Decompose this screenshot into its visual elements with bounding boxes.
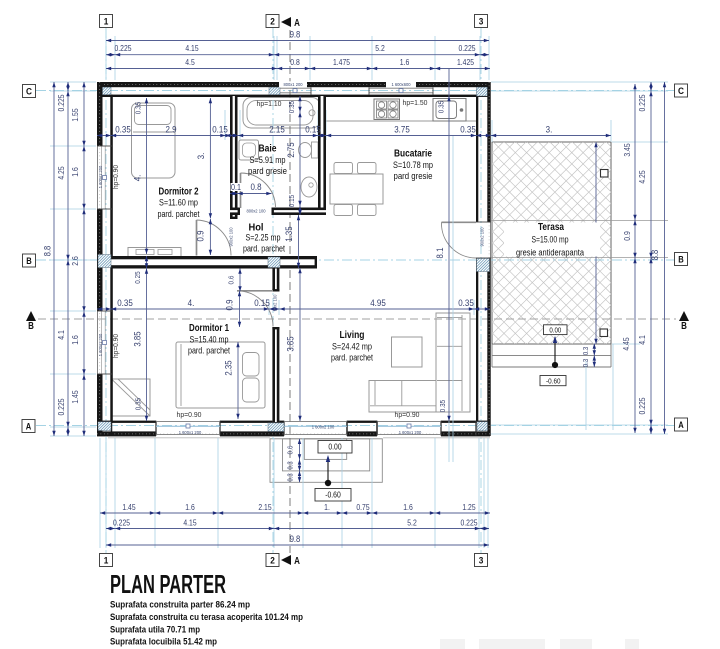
svg-text:Bucatarie: Bucatarie xyxy=(394,149,432,160)
svg-text:3.: 3. xyxy=(546,124,553,135)
svg-text:1.25: 1.25 xyxy=(462,503,476,512)
svg-text:3.85: 3.85 xyxy=(286,336,296,351)
svg-text:C: C xyxy=(26,87,32,98)
svg-text:Suprafata construita parter 86: Suprafata construita parter 86.24 mp xyxy=(110,600,250,611)
svg-text:0.6: 0.6 xyxy=(227,276,236,285)
svg-text:0.3: 0.3 xyxy=(288,461,295,469)
svg-text:3.45: 3.45 xyxy=(623,143,632,157)
svg-text:4.25: 4.25 xyxy=(638,170,647,184)
svg-text:pard. parchet: pard. parchet xyxy=(331,353,373,364)
svg-text:0.8: 0.8 xyxy=(290,58,300,67)
svg-text:900x2 100: 900x2 100 xyxy=(229,227,235,246)
svg-text:S=15.00 mp: S=15.00 mp xyxy=(532,235,569,245)
svg-text:hp=0.90: hp=0.90 xyxy=(177,410,202,419)
svg-text:1.6: 1.6 xyxy=(71,167,80,177)
svg-text:Suprafata utila 70.71 mp: Suprafata utila 70.71 mp xyxy=(110,625,200,636)
svg-text:0.225: 0.225 xyxy=(113,519,130,528)
svg-text:1: 1 xyxy=(104,17,109,28)
svg-text:0.225: 0.225 xyxy=(461,519,478,528)
svg-text:1.425: 1.425 xyxy=(457,58,474,67)
svg-text:3: 3 xyxy=(479,556,484,567)
svg-text:S=2.25 mp: S=2.25 mp xyxy=(246,232,281,243)
svg-text:0.3: 0.3 xyxy=(583,359,590,367)
svg-text:3.85: 3.85 xyxy=(133,331,143,346)
svg-text:1.6: 1.6 xyxy=(185,503,195,512)
svg-text:1.35: 1.35 xyxy=(284,226,294,241)
svg-text:pard. parchet: pard. parchet xyxy=(243,243,285,254)
svg-text:1 600x600: 1 600x600 xyxy=(391,82,410,88)
svg-text:3.75: 3.75 xyxy=(394,124,410,135)
svg-text:0.15: 0.15 xyxy=(305,124,321,135)
svg-text:gresie antiderapanta: gresie antiderapanta xyxy=(516,248,584,258)
svg-text:2.75: 2.75 xyxy=(286,142,296,157)
svg-text:0.225: 0.225 xyxy=(459,44,476,53)
svg-text:0.15: 0.15 xyxy=(287,195,296,207)
svg-text:0.25: 0.25 xyxy=(133,271,142,283)
svg-text:0.35: 0.35 xyxy=(287,101,296,113)
svg-text:90x2 100: 90x2 100 xyxy=(273,294,279,311)
svg-text:0.225: 0.225 xyxy=(57,94,66,111)
svg-text:0.225: 0.225 xyxy=(638,397,647,414)
svg-text:2.6: 2.6 xyxy=(71,256,80,266)
svg-text:0.9: 0.9 xyxy=(196,231,206,242)
svg-text:2.35: 2.35 xyxy=(224,360,234,375)
svg-text:9.8: 9.8 xyxy=(290,534,301,544)
svg-text:0.1: 0.1 xyxy=(231,182,241,192)
svg-text:4.1: 4.1 xyxy=(57,330,66,340)
svg-text:8.8: 8.8 xyxy=(650,250,660,260)
svg-text:Living: Living xyxy=(340,330,365,341)
svg-text:1.6: 1.6 xyxy=(400,58,410,67)
svg-text:S=24.42 mp: S=24.42 mp xyxy=(332,341,372,352)
svg-text:1 600x1 200: 1 600x1 200 xyxy=(98,165,104,188)
svg-text:0.225: 0.225 xyxy=(115,44,132,53)
svg-text:A: A xyxy=(294,18,300,29)
svg-text:hp=0.90: hp=0.90 xyxy=(113,165,120,189)
svg-text:0.35: 0.35 xyxy=(134,398,143,410)
svg-text:-0.60: -0.60 xyxy=(546,377,561,386)
svg-text:2.15: 2.15 xyxy=(269,124,285,135)
svg-text:0.15: 0.15 xyxy=(212,124,228,135)
svg-text:4.1: 4.1 xyxy=(638,335,647,345)
svg-text:0.9: 0.9 xyxy=(225,300,235,311)
svg-text:900x2 100: 900x2 100 xyxy=(480,227,486,246)
svg-text:1.6: 1.6 xyxy=(71,335,80,345)
svg-text:0.3: 0.3 xyxy=(288,473,295,481)
svg-text:A: A xyxy=(294,556,300,567)
svg-text:Suprafata locuibila 51.42 mp: Suprafata locuibila 51.42 mp xyxy=(110,637,217,648)
svg-text:1.475: 1.475 xyxy=(333,58,350,67)
svg-text:0.15: 0.15 xyxy=(254,297,270,308)
svg-text:1.55: 1.55 xyxy=(71,108,80,122)
svg-text:2.15: 2.15 xyxy=(258,503,272,512)
svg-text:1.45: 1.45 xyxy=(71,390,80,404)
svg-text:0.35: 0.35 xyxy=(115,124,131,135)
svg-text:5.2: 5.2 xyxy=(407,519,417,528)
svg-text:4.5: 4.5 xyxy=(185,58,195,67)
svg-text:4.: 4. xyxy=(188,297,195,308)
svg-text:pard gresie: pard gresie xyxy=(248,166,287,177)
svg-text:4.45: 4.45 xyxy=(622,337,631,351)
svg-text:pard. parchet: pard. parchet xyxy=(158,209,200,220)
svg-text:Baie: Baie xyxy=(259,144,277,155)
svg-text:0.225: 0.225 xyxy=(57,398,66,415)
svg-text:4.15: 4.15 xyxy=(185,44,199,53)
svg-text:2: 2 xyxy=(270,556,275,567)
svg-text:800x1 200: 800x1 200 xyxy=(283,82,302,88)
svg-text:pard. parchet: pard. parchet xyxy=(188,346,230,357)
svg-text:1.6: 1.6 xyxy=(403,503,413,512)
svg-text:0.8: 0.8 xyxy=(250,181,261,192)
svg-text:1.: 1. xyxy=(324,503,330,512)
svg-text:0.35: 0.35 xyxy=(438,400,447,412)
svg-text:pard gresie: pard gresie xyxy=(394,171,433,182)
svg-text:S=15.40 mp: S=15.40 mp xyxy=(190,334,229,345)
svg-text:0.35: 0.35 xyxy=(460,124,476,135)
svg-text:B: B xyxy=(678,255,684,266)
svg-text:2.9: 2.9 xyxy=(165,124,176,135)
svg-text:S=5.91 mp: S=5.91 mp xyxy=(250,155,286,166)
svg-text:hp=0.90: hp=0.90 xyxy=(395,410,420,419)
svg-text:4.95: 4.95 xyxy=(370,297,386,308)
svg-text:8.8: 8.8 xyxy=(43,246,53,256)
svg-text:0.00: 0.00 xyxy=(549,325,561,334)
svg-text:B: B xyxy=(681,321,687,332)
svg-text:hp=1.10: hp=1.10 xyxy=(257,99,282,108)
svg-text:A: A xyxy=(678,420,684,431)
svg-text:0.9: 0.9 xyxy=(623,231,632,241)
svg-text:3: 3 xyxy=(479,17,484,28)
svg-text:800x2 100: 800x2 100 xyxy=(246,209,265,215)
svg-text:0.35: 0.35 xyxy=(134,102,143,114)
svg-text:Terasa: Terasa xyxy=(538,222,564,233)
svg-text:9.8: 9.8 xyxy=(290,30,301,40)
svg-text:0.35: 0.35 xyxy=(117,297,133,308)
svg-text:-0.60: -0.60 xyxy=(325,491,341,500)
svg-text:5.2: 5.2 xyxy=(375,44,385,53)
svg-text:1 600x1 200: 1 600x1 200 xyxy=(98,333,104,356)
svg-text:0.6: 0.6 xyxy=(286,446,295,455)
svg-text:4.25: 4.25 xyxy=(57,166,66,180)
svg-text:4.: 4. xyxy=(133,175,143,182)
svg-text:B: B xyxy=(28,321,34,332)
svg-text:C: C xyxy=(678,86,684,97)
svg-text:1 600x1 200: 1 600x1 200 xyxy=(399,430,422,436)
svg-text:Dormitor 1: Dormitor 1 xyxy=(189,323,229,334)
svg-text:8.1: 8.1 xyxy=(435,248,445,259)
svg-text:1: 1 xyxy=(104,556,109,567)
svg-text:Dormitor 2: Dormitor 2 xyxy=(159,186,199,197)
svg-text:B: B xyxy=(26,256,32,267)
svg-text:4.15: 4.15 xyxy=(183,519,197,528)
svg-text:0.35: 0.35 xyxy=(437,101,446,113)
svg-text:PLAN PARTER: PLAN PARTER xyxy=(110,569,226,599)
svg-text:hp=0.90: hp=0.90 xyxy=(113,334,120,358)
svg-text:1 600x1 200: 1 600x1 200 xyxy=(179,430,202,436)
svg-text:hp=1.50: hp=1.50 xyxy=(403,98,428,107)
svg-text:0.75: 0.75 xyxy=(356,503,370,512)
svg-text:1.45: 1.45 xyxy=(122,503,136,512)
svg-text:0.00: 0.00 xyxy=(328,443,342,452)
svg-text:0.35: 0.35 xyxy=(458,297,474,308)
svg-text:1 600x2 100: 1 600x2 100 xyxy=(312,424,335,430)
svg-text:3.: 3. xyxy=(196,153,206,160)
svg-text:0.3: 0.3 xyxy=(583,347,590,355)
svg-text:0.225: 0.225 xyxy=(638,94,647,111)
svg-text:A: A xyxy=(26,422,32,433)
svg-text:2: 2 xyxy=(270,17,275,28)
svg-text:S=11.60 mp: S=11.60 mp xyxy=(159,198,198,209)
svg-text:S=10.78 mp: S=10.78 mp xyxy=(393,160,433,171)
svg-text:Suprafata construita cu terasa: Suprafata construita cu terasa acoperita… xyxy=(110,612,303,623)
